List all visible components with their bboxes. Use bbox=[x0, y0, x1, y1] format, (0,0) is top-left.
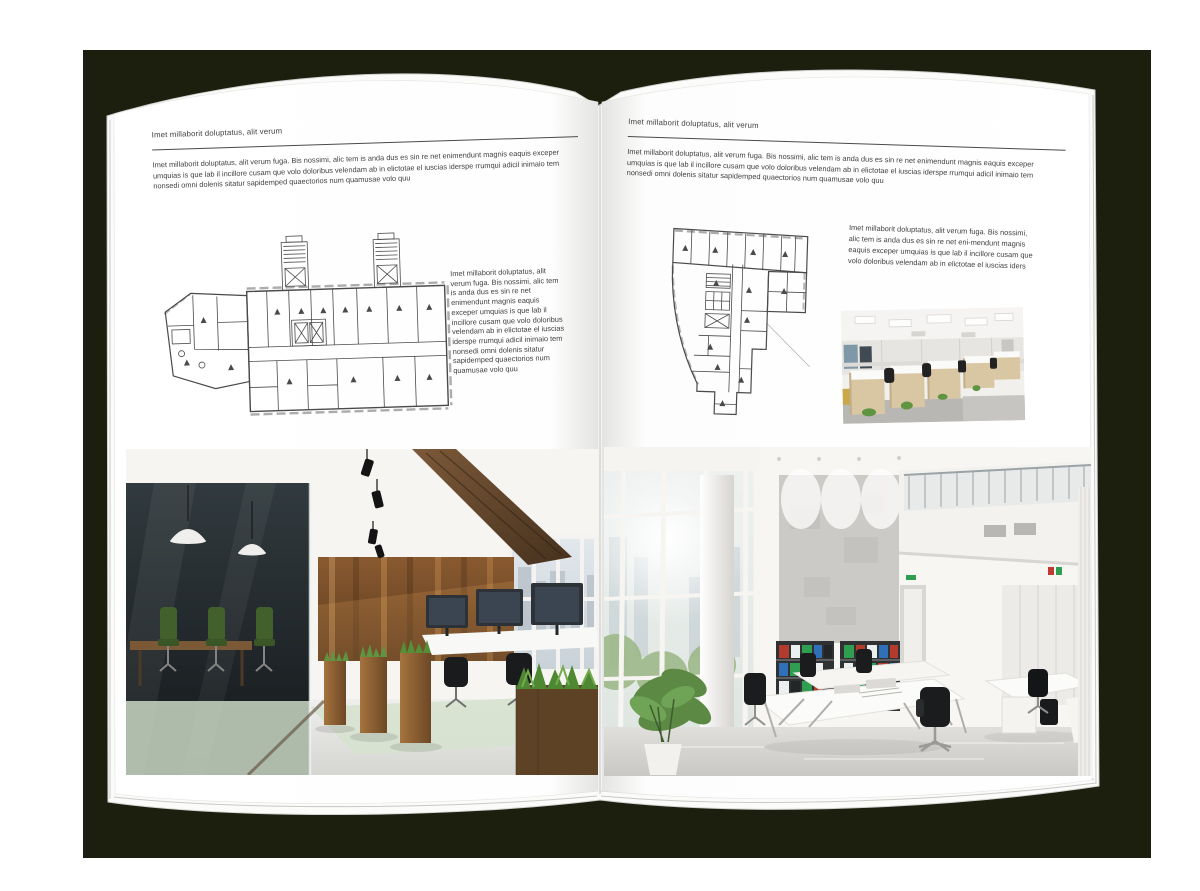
page-header-title: Imet millaborit doluptatus, alit verum bbox=[628, 117, 759, 130]
intro-paragraph: Imet millaborit doluptatus, alit verum f… bbox=[626, 147, 1041, 192]
office-photo-atrium bbox=[604, 447, 1091, 776]
office-photo-small-open-space bbox=[841, 307, 1025, 424]
floorplan-caption: Imet millaborit doluptatus, alit verum f… bbox=[848, 222, 1035, 272]
floor-plan-right-drawing bbox=[640, 216, 832, 428]
floor-plan-left-drawing bbox=[153, 225, 459, 426]
office-photo-dark-loft bbox=[126, 449, 598, 775]
page-header-title: Imet millaborit doluptatus, alit verum bbox=[152, 126, 283, 139]
intro-paragraph: Imet millaborit doluptatus, alit verum f… bbox=[152, 148, 565, 193]
floorplan-caption: Imet millaborit doluptatus, alit verum f… bbox=[450, 266, 567, 376]
book-mockup-stage: Imet millaborit doluptatus, alit verum I… bbox=[0, 0, 1200, 891]
